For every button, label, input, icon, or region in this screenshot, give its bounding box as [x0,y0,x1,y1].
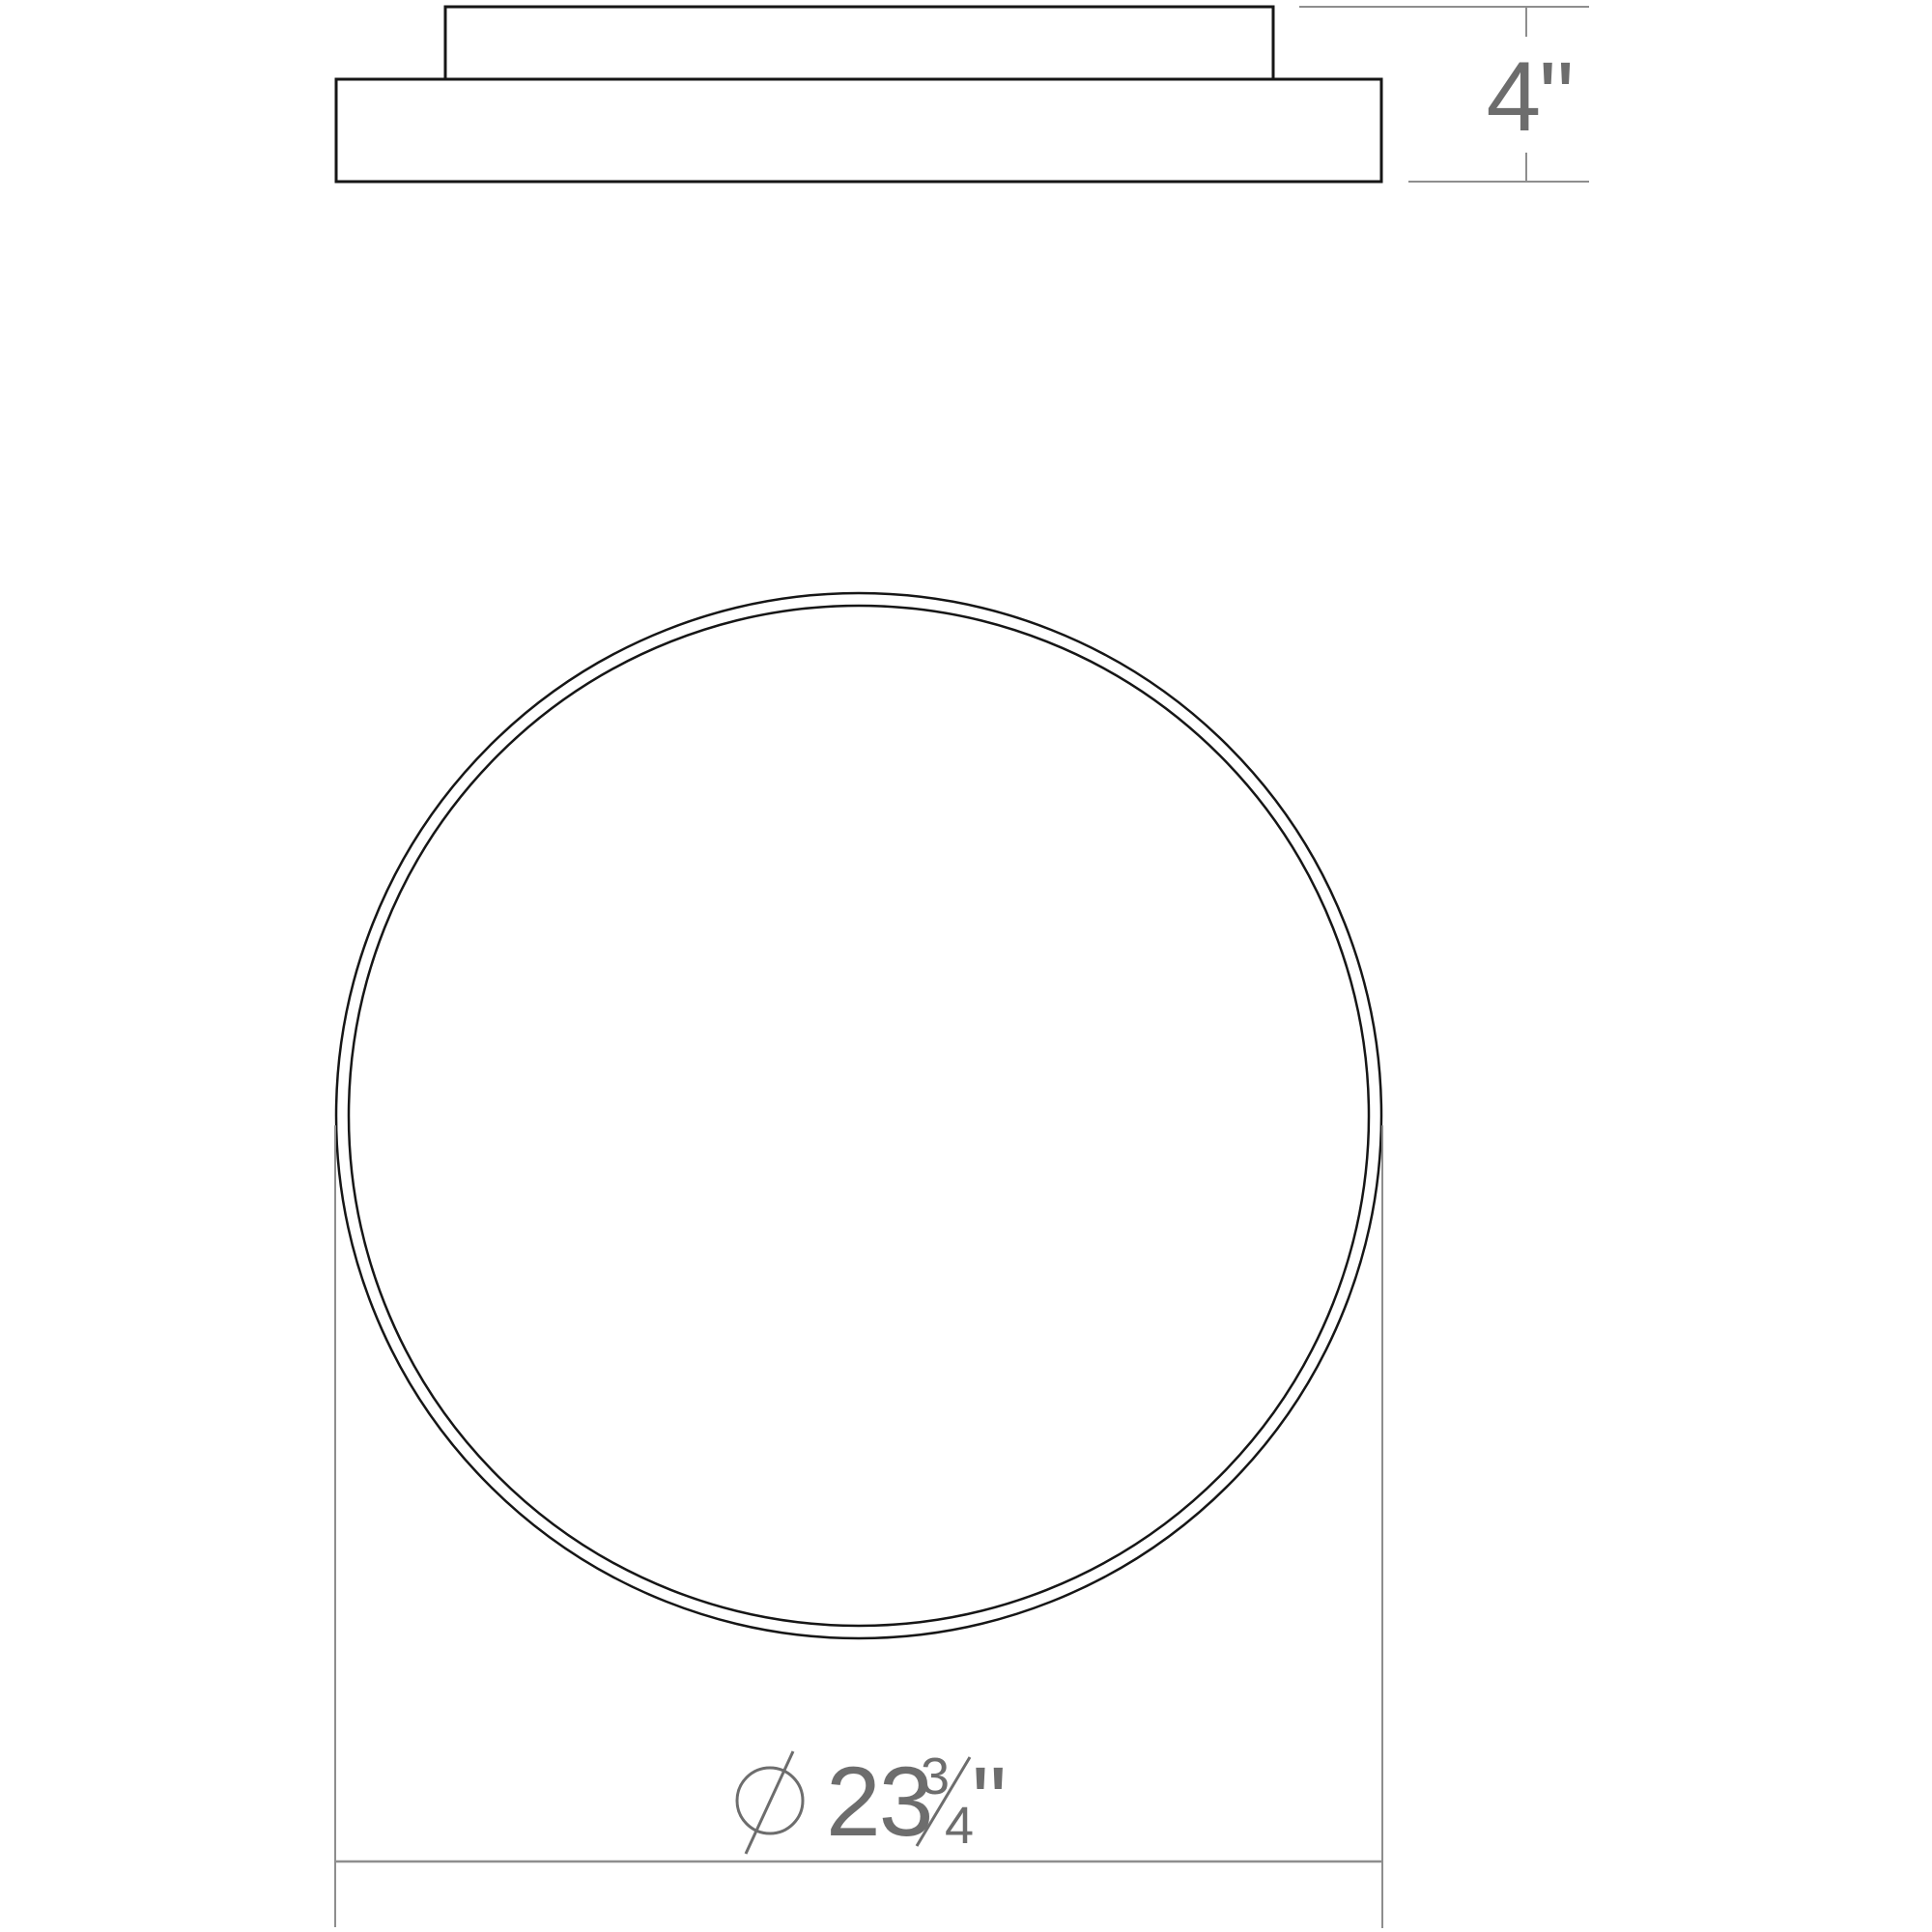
front-view [336,593,1381,1638]
diameter-inches-mark: " [972,1747,1005,1857]
height-dimension-label: 4" [1487,42,1573,152]
diameter-dimension: 23 3 4 " [335,1125,1382,1928]
technical-drawing: 4" 23 3 4 " [0,0,1932,1932]
diameter-fraction-denominator: 4 [945,1797,974,1855]
diameter-icon [737,1751,803,1854]
side-view [336,7,1381,182]
fixture-body-outline [336,79,1381,182]
fixture-outer-circle [336,593,1381,1638]
diameter-whole-number: 23 [826,1747,931,1857]
fixture-inner-circle [349,606,1369,1626]
canopy-outline [445,7,1273,79]
